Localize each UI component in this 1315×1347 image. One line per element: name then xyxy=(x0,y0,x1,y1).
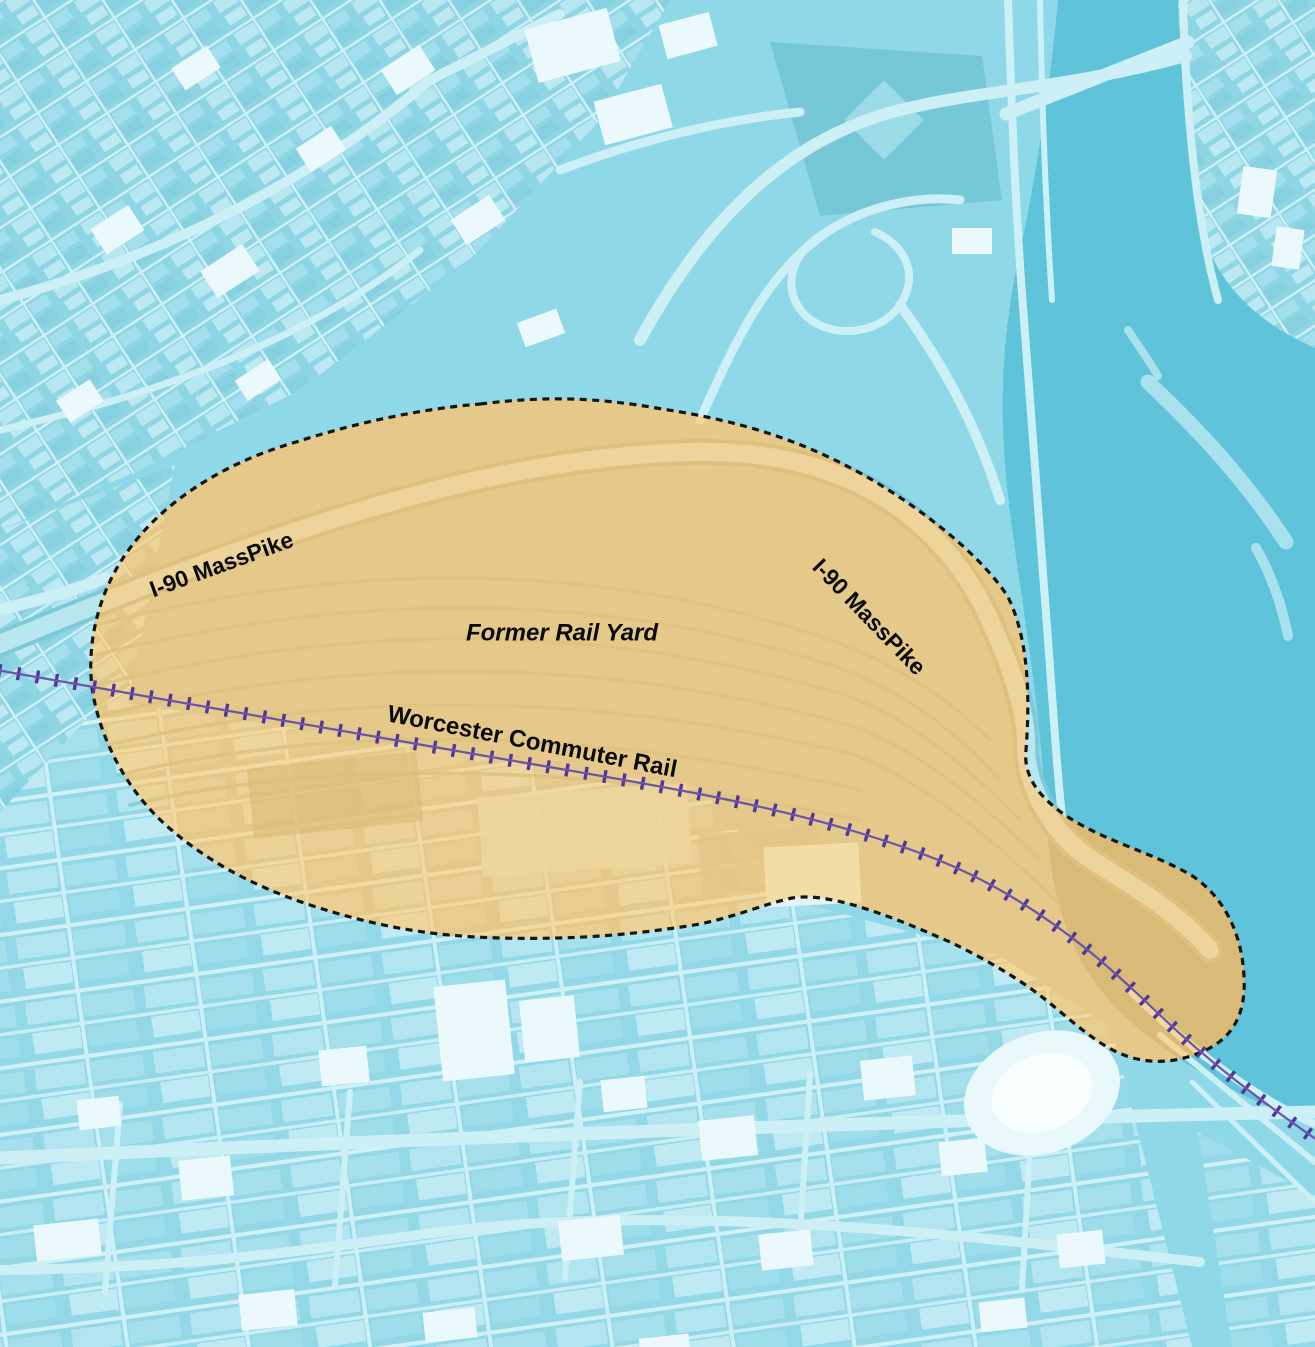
aerial-map: I-90 MassPike Former Rail Yard I-90 Mass… xyxy=(0,0,1315,1347)
label-former-rail-yard: Former Rail Yard xyxy=(466,619,659,646)
map-container: I-90 MassPike Former Rail Yard I-90 Mass… xyxy=(0,0,1315,1347)
